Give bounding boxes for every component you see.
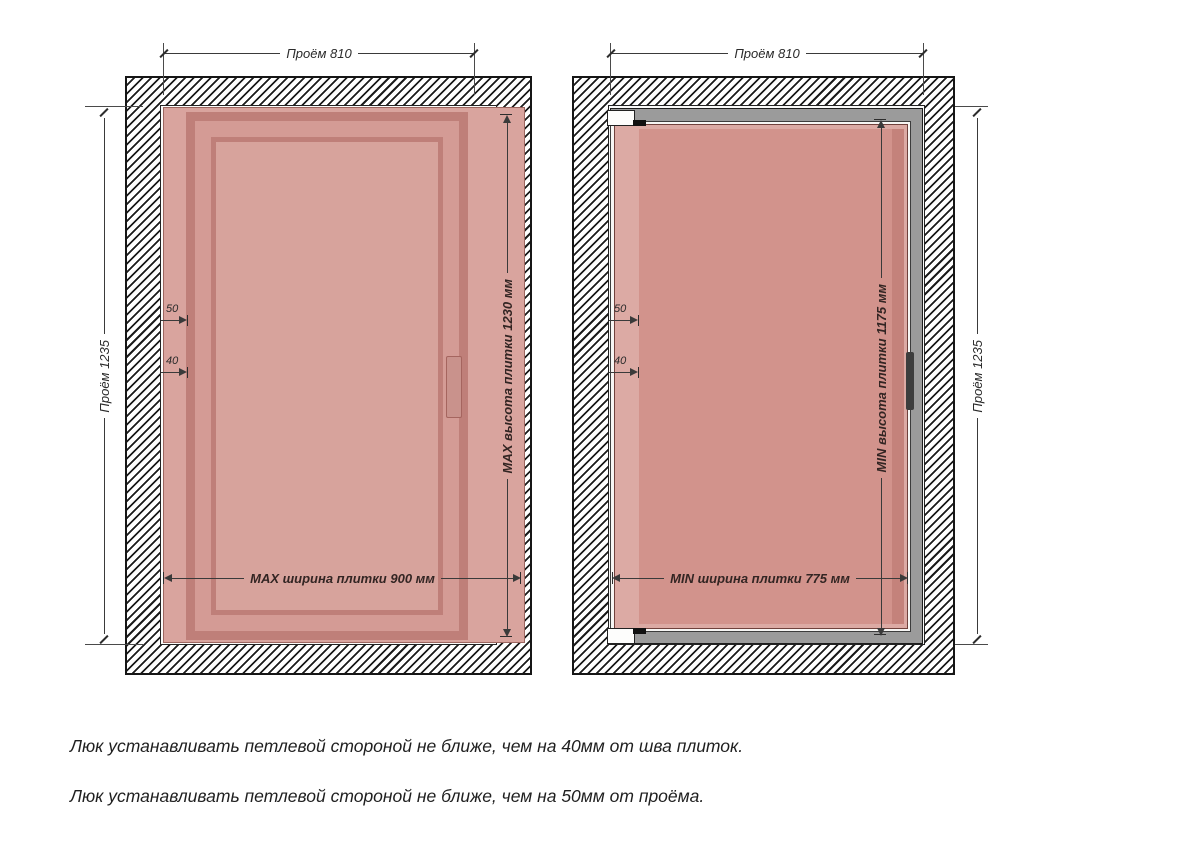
right-side-dim-label: Проём 1235 <box>971 334 984 419</box>
dim-line <box>856 578 900 579</box>
dim-line <box>881 478 882 628</box>
arrow-down-icon <box>503 629 511 637</box>
arrow-down-icon <box>877 628 885 636</box>
dim-line <box>977 418 978 634</box>
dim-line <box>441 578 513 579</box>
left-side-ext-bottom <box>85 644 143 645</box>
left-handle <box>446 356 462 418</box>
right-min-width-label: MIN ширина плитки 775 мм <box>664 572 856 585</box>
right-min-height-dimension: MIN высота плитки 1175 мм <box>873 120 889 636</box>
right-handle <box>906 352 914 410</box>
arrow-right-icon <box>630 368 638 376</box>
dim-line <box>507 479 508 629</box>
top-hinge-pin <box>633 120 646 126</box>
dim-line <box>507 123 508 273</box>
left-offset-40-label: 40 <box>166 356 178 367</box>
top-hinge <box>607 110 635 126</box>
dim-line <box>172 578 244 579</box>
dim-line <box>612 53 728 54</box>
dim-line <box>104 118 105 334</box>
arrow-right-icon <box>900 574 908 582</box>
dim-line <box>161 320 179 321</box>
left-side-dimension: Проём 1235 <box>96 107 112 645</box>
left-top-dimension: Проём 810 <box>163 46 475 60</box>
right-offset-50-label: 50 <box>614 304 626 315</box>
right-tile-main <box>639 129 893 624</box>
right-top-dimension: Проём 810 <box>610 46 924 60</box>
arrow-left-icon <box>612 574 620 582</box>
dim-tick <box>972 108 981 117</box>
right-offset-40-line <box>609 367 639 377</box>
dim-line <box>806 53 922 54</box>
dim-tick <box>638 367 640 378</box>
installation-note-seam: Люк устанавливать петлевой стороной не б… <box>70 736 743 757</box>
arrow-up-icon <box>877 120 885 128</box>
left-side-dim-label: Проём 1235 <box>98 334 111 419</box>
arrow-right-icon <box>179 368 187 376</box>
dim-line <box>104 418 105 634</box>
right-offset-50-line <box>609 315 639 325</box>
dim-tick <box>187 315 189 326</box>
left-hatch-leaf <box>186 112 468 640</box>
dim-tick <box>638 315 640 326</box>
left-max-width-dimension: MAX ширина плитки 900 мм <box>164 571 521 585</box>
left-top-dim-label: Проём 810 <box>280 47 357 60</box>
right-top-dim-label: Проём 810 <box>728 47 805 60</box>
right-offset-40-label: 40 <box>614 356 626 367</box>
dim-line <box>165 53 280 54</box>
installation-note-opening: Люк устанавливать петлевой стороной не б… <box>70 786 704 807</box>
left-max-width-label: MAX ширина плитки 900 мм <box>244 572 441 585</box>
dim-line <box>620 578 664 579</box>
dim-line <box>609 372 630 373</box>
dim-tick <box>99 108 108 117</box>
left-max-height-label: MAX высота плитки 1230 мм <box>501 273 514 479</box>
dim-line <box>161 372 179 373</box>
right-tile-area <box>614 124 908 629</box>
dim-line <box>358 53 473 54</box>
right-leaf-edge <box>892 129 904 624</box>
arrow-left-icon <box>164 574 172 582</box>
right-min-height-label: MIN высота плитки 1175 мм <box>875 278 888 478</box>
bottom-hinge <box>607 628 635 644</box>
arrow-up-icon <box>503 115 511 123</box>
dim-line <box>977 118 978 334</box>
arrow-right-icon <box>630 316 638 324</box>
left-offset-50-label: 50 <box>166 304 178 315</box>
leaf-panel <box>216 142 438 610</box>
bottom-hinge-pin <box>633 628 646 634</box>
arrow-right-icon <box>179 316 187 324</box>
right-side-dimension: Проём 1235 <box>969 107 985 645</box>
left-offset-50-line <box>161 315 188 325</box>
dim-tick <box>99 635 108 644</box>
left-max-height-dimension: MAX высота плитки 1230 мм <box>499 115 515 637</box>
right-min-width-dimension: MIN ширина плитки 775 мм <box>612 571 908 585</box>
arrow-right-icon <box>513 574 521 582</box>
left-side-ext-top <box>85 106 143 107</box>
dim-line <box>609 320 630 321</box>
dim-tick <box>187 367 189 378</box>
technical-drawing-canvas: Проём 810 Проём 1235 MAX высота плитки 1… <box>0 0 1200 845</box>
left-offset-40-line <box>161 367 188 377</box>
dim-line <box>881 128 882 278</box>
dim-tick <box>972 635 981 644</box>
